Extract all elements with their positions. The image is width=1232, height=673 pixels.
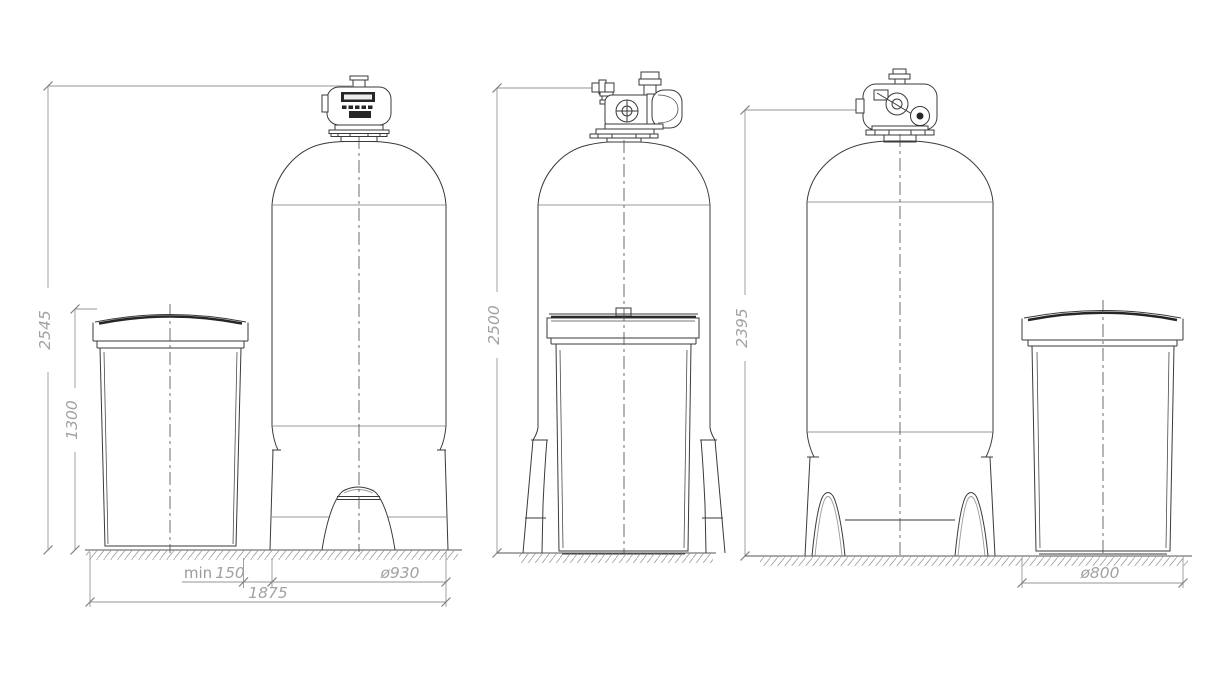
softener-dimension-drawing: 2545 1300 bbox=[0, 0, 1232, 673]
brine-tank-middle bbox=[547, 140, 699, 554]
dimension-brine-height-left: 1300 bbox=[63, 305, 97, 555]
dim-text-2545: 2545 bbox=[36, 310, 54, 349]
ground-line-middle bbox=[497, 553, 716, 563]
ground-line-right bbox=[745, 556, 1192, 566]
dim-text-2500: 2500 bbox=[485, 305, 503, 345]
resin-tank-left bbox=[270, 76, 448, 552]
control-valve-mechanical-icon bbox=[590, 72, 682, 142]
dim-text-1875: 1875 bbox=[248, 584, 287, 602]
view-left-softener: 2545 1300 bbox=[36, 76, 462, 607]
dim-text-2395: 2395 bbox=[733, 308, 751, 347]
dim-text-930: ø930 bbox=[379, 564, 419, 582]
dimension-overall-height-right: 2395 bbox=[733, 106, 863, 561]
dim-text-150: 150 bbox=[215, 564, 245, 582]
control-valve-gauge-icon bbox=[856, 69, 937, 142]
dim-text-1300: 1300 bbox=[63, 400, 81, 440]
dim-text-800: ø800 bbox=[1079, 564, 1119, 582]
resin-tank-right bbox=[805, 69, 995, 556]
brine-tank-left bbox=[93, 304, 248, 553]
view-middle-softener: 2500 bbox=[485, 72, 725, 563]
dim-text-min: min bbox=[184, 564, 212, 582]
brine-tank-right bbox=[1022, 300, 1183, 556]
dimension-overall-width: 1875 bbox=[86, 584, 451, 607]
technical-drawing: 2545 1300 bbox=[0, 0, 1232, 673]
ground-line-left bbox=[85, 550, 462, 560]
view-right-softener: 2395 bbox=[733, 69, 1192, 588]
